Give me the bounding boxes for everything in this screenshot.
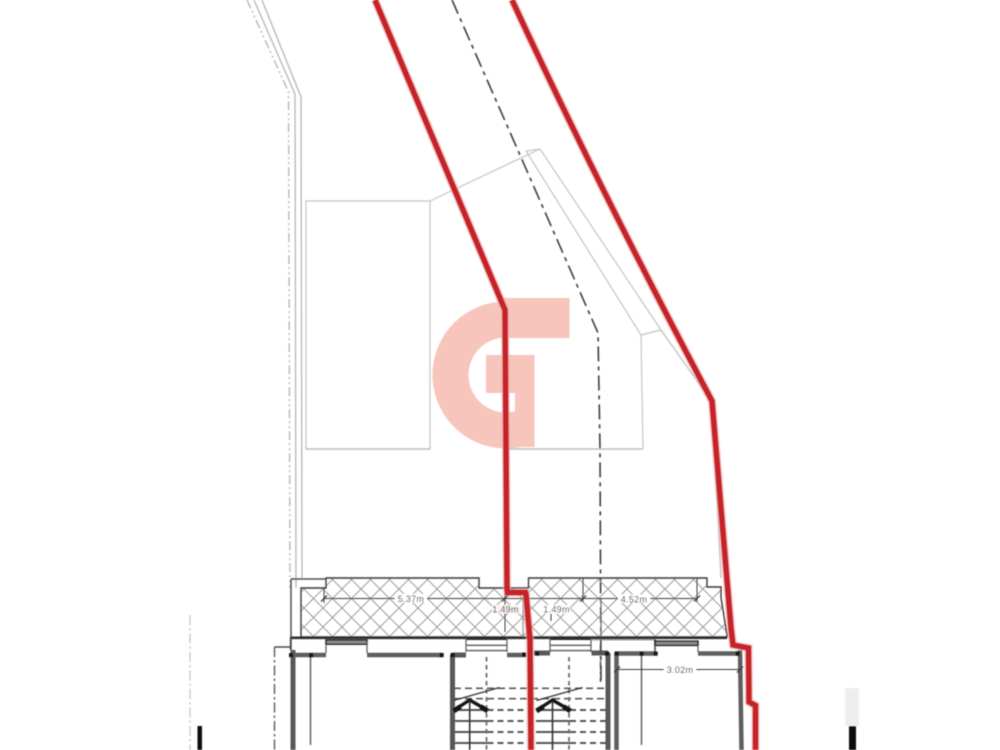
svg-text:1.49m: 1.49m [543, 605, 570, 615]
svg-text:5.37m: 5.37m [398, 594, 425, 604]
svg-text:1.49m: 1.49m [492, 605, 519, 615]
svg-text:3.02m: 3.02m [667, 665, 694, 675]
svg-text:4.52m: 4.52m [621, 595, 648, 605]
